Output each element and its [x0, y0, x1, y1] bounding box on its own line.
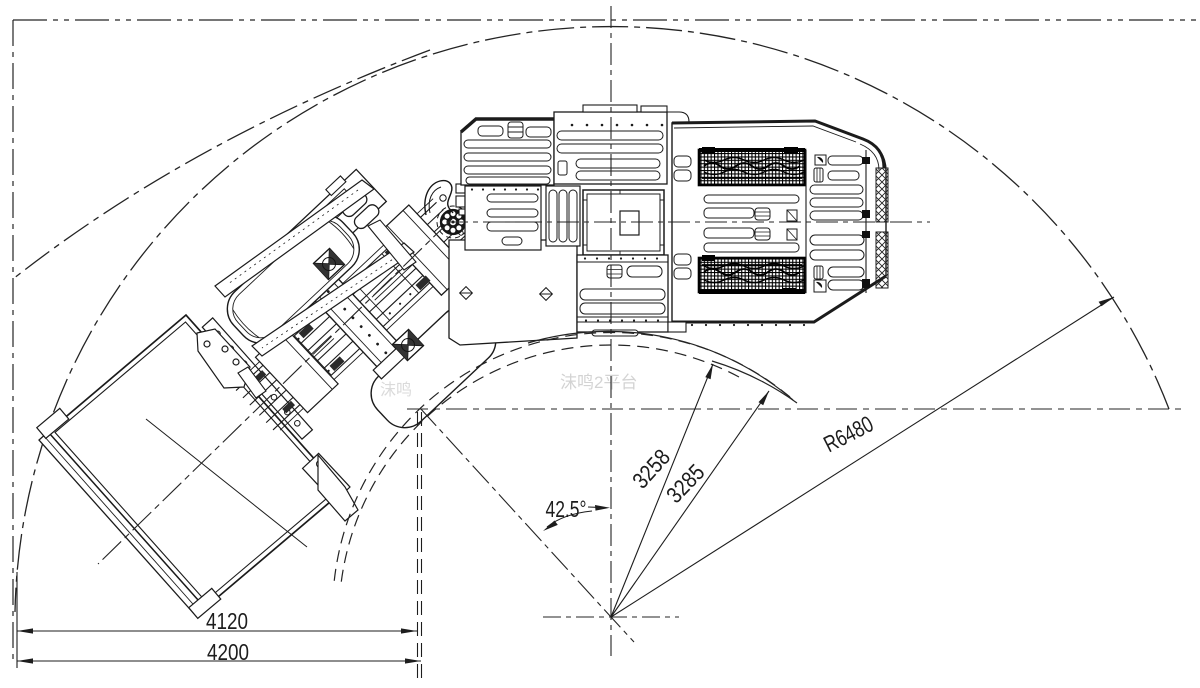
svg-text:42.5°: 42.5°	[546, 496, 587, 522]
svg-text:4120: 4120	[206, 608, 248, 634]
svg-text:沫鸣: 沫鸣	[380, 381, 412, 399]
svg-text:沫鸣2平台: 沫鸣2平台	[560, 373, 637, 392]
svg-text:4200: 4200	[207, 639, 249, 665]
